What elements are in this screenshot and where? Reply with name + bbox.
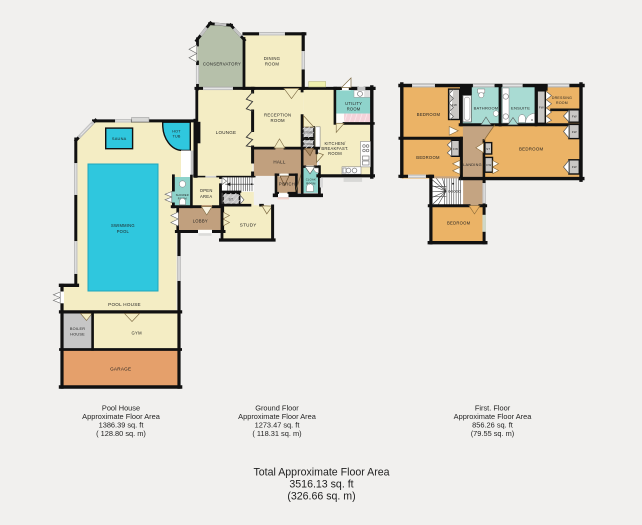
- svg-text:SWIMMING: SWIMMING: [111, 223, 135, 228]
- svg-text:ST: ST: [486, 147, 490, 151]
- svg-text:( 118.31 sq. m): ( 118.31 sq. m): [252, 429, 301, 438]
- svg-text:TUB: TUB: [172, 135, 180, 139]
- svg-text:CLOAK: CLOAK: [306, 178, 316, 182]
- svg-text:DRESSING: DRESSING: [552, 96, 572, 100]
- svg-text:ST.: ST.: [228, 197, 234, 201]
- svg-text:BEDROOM: BEDROOM: [417, 112, 441, 117]
- svg-text:LOBBY: LOBBY: [193, 219, 208, 224]
- svg-text:( 128.80 sq. m): ( 128.80 sq. m): [96, 429, 146, 438]
- svg-text:(326.66 sq. m): (326.66 sq. m): [287, 491, 355, 503]
- svg-text:FW: FW: [572, 165, 577, 169]
- svg-text:3516.13 sq. ft: 3516.13 sq. ft: [289, 479, 353, 491]
- svg-text:SHOWER: SHOWER: [176, 193, 189, 197]
- svg-text:(79.55 sq. m): (79.55 sq. m): [471, 429, 515, 438]
- svg-text:LOUNGE: LOUNGE: [216, 130, 237, 135]
- svg-text:POOL: POOL: [117, 229, 130, 234]
- svg-text:BEDROOM: BEDROOM: [519, 147, 544, 152]
- svg-text:HOT: HOT: [172, 130, 181, 134]
- svg-text:ENSUITE: ENSUITE: [511, 106, 530, 111]
- svg-text:STUDY: STUDY: [240, 223, 257, 228]
- svg-text:BEDROOM: BEDROOM: [416, 155, 440, 160]
- svg-text:LANDING: LANDING: [463, 163, 482, 167]
- svg-text:HALL: HALL: [273, 160, 286, 165]
- svg-text:HOUSE: HOUSE: [70, 332, 85, 336]
- svg-text:FW: FW: [453, 147, 458, 151]
- svg-text:BEDROOM: BEDROOM: [447, 220, 471, 225]
- svg-text:BOILER: BOILER: [70, 327, 85, 331]
- svg-text:ROOM: ROOM: [556, 101, 568, 105]
- svg-text:CONSERVATORY: CONSERVATORY: [203, 62, 241, 67]
- svg-text:OPEN: OPEN: [200, 188, 213, 193]
- svg-text:STORE: STORE: [303, 132, 313, 135]
- svg-text:AREA: AREA: [200, 194, 212, 199]
- svg-text:DINING: DINING: [264, 56, 281, 61]
- svg-text:ROOM: ROOM: [265, 61, 280, 66]
- svg-text:FW: FW: [486, 163, 491, 167]
- svg-text:FW: FW: [539, 106, 544, 110]
- svg-text:GYM: GYM: [132, 331, 143, 336]
- svg-text:Total Approximate Floor Area: Total Approximate Floor Area: [253, 467, 389, 479]
- svg-text:FW: FW: [572, 115, 577, 119]
- svg-text:SAUNA: SAUNA: [112, 136, 127, 141]
- svg-text:POOL HOUSE: POOL HOUSE: [108, 302, 141, 307]
- svg-text:ROOM: ROOM: [328, 151, 342, 156]
- svg-text:STORE: STORE: [303, 143, 313, 146]
- svg-text:GARAGE: GARAGE: [110, 367, 131, 372]
- svg-text:PORCH: PORCH: [279, 182, 295, 187]
- svg-text:ROOM: ROOM: [347, 106, 361, 111]
- svg-text:BATHROOM: BATHROOM: [474, 106, 499, 111]
- svg-text:RECEPTION: RECEPTION: [264, 113, 291, 118]
- svg-text:ROOM: ROOM: [306, 181, 316, 185]
- svg-text:FW: FW: [572, 130, 577, 134]
- svg-text:FW: FW: [452, 103, 457, 107]
- svg-text:ROOM: ROOM: [271, 118, 286, 123]
- svg-text:UTILITY: UTILITY: [345, 101, 362, 106]
